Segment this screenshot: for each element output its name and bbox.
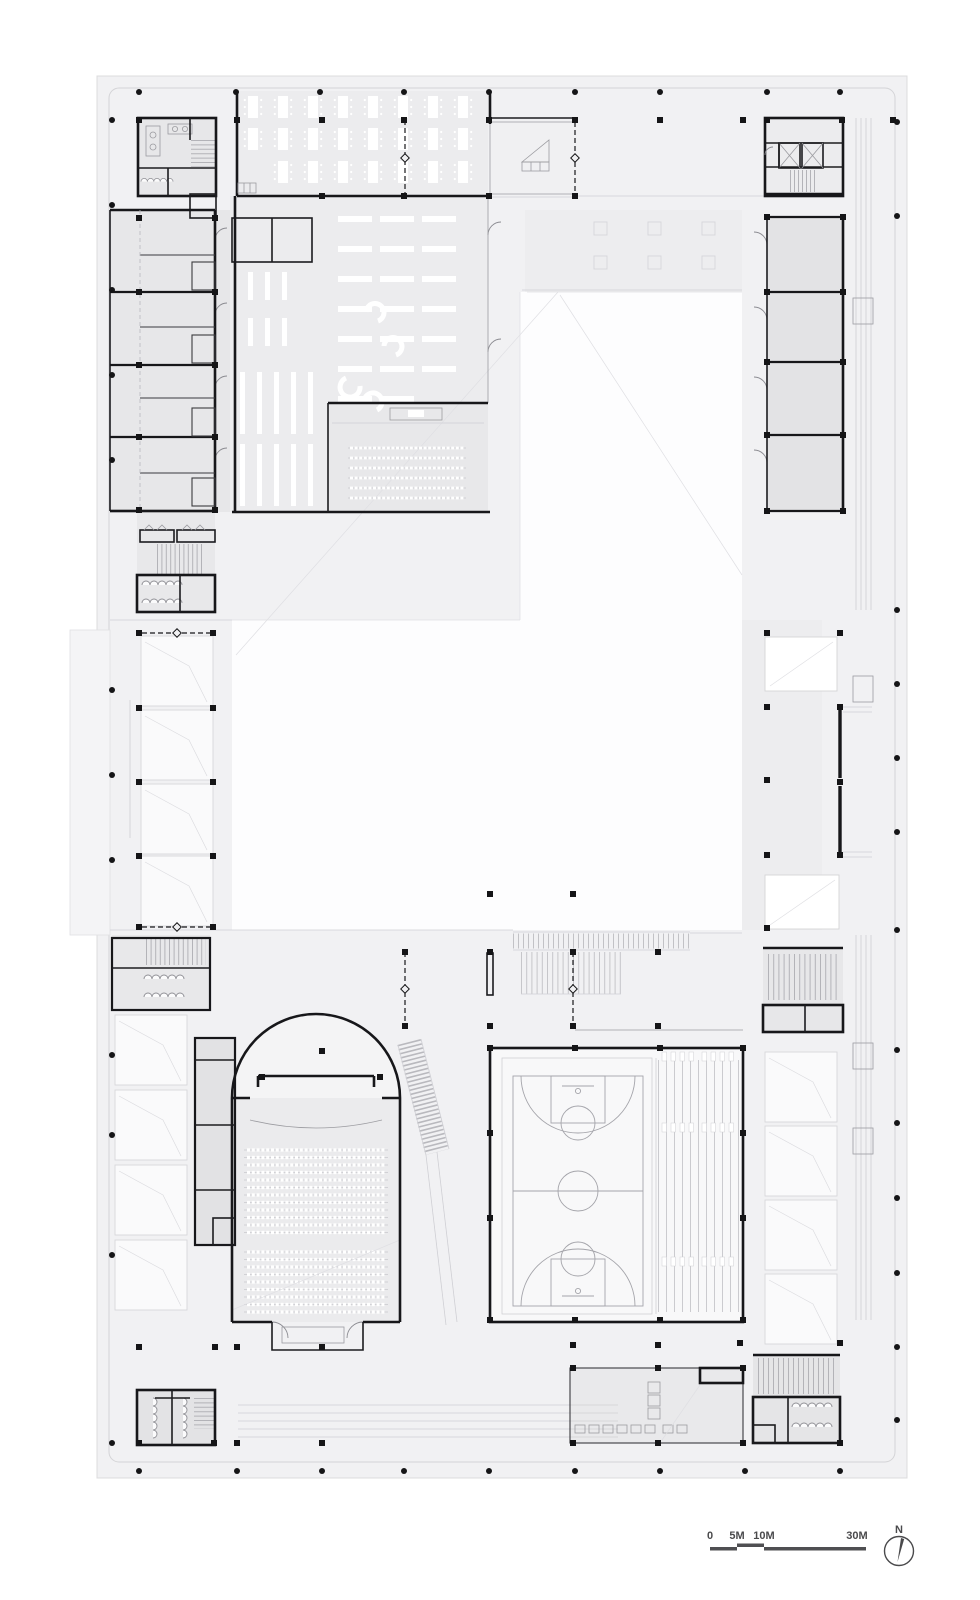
scale-segment (764, 1547, 866, 1551)
compass-needle (898, 1538, 905, 1562)
west-terrace (70, 630, 110, 935)
scale-label-5m: 5M (729, 1530, 744, 1542)
scale-segment (737, 1544, 764, 1548)
scale-label-30m: 30M (846, 1530, 867, 1542)
compass-circle (885, 1537, 914, 1566)
scale-label-0: 0 (707, 1530, 713, 1542)
north-arrow: N (885, 1524, 914, 1566)
scale-label-10m: 10M (753, 1530, 774, 1542)
scale-bar: 0 5M 10M 30M (707, 1530, 868, 1551)
floor-plan-drawing: 0 5M 10M 30M N (0, 0, 980, 1600)
north-label: N (895, 1524, 903, 1536)
scale-segment (710, 1547, 737, 1551)
